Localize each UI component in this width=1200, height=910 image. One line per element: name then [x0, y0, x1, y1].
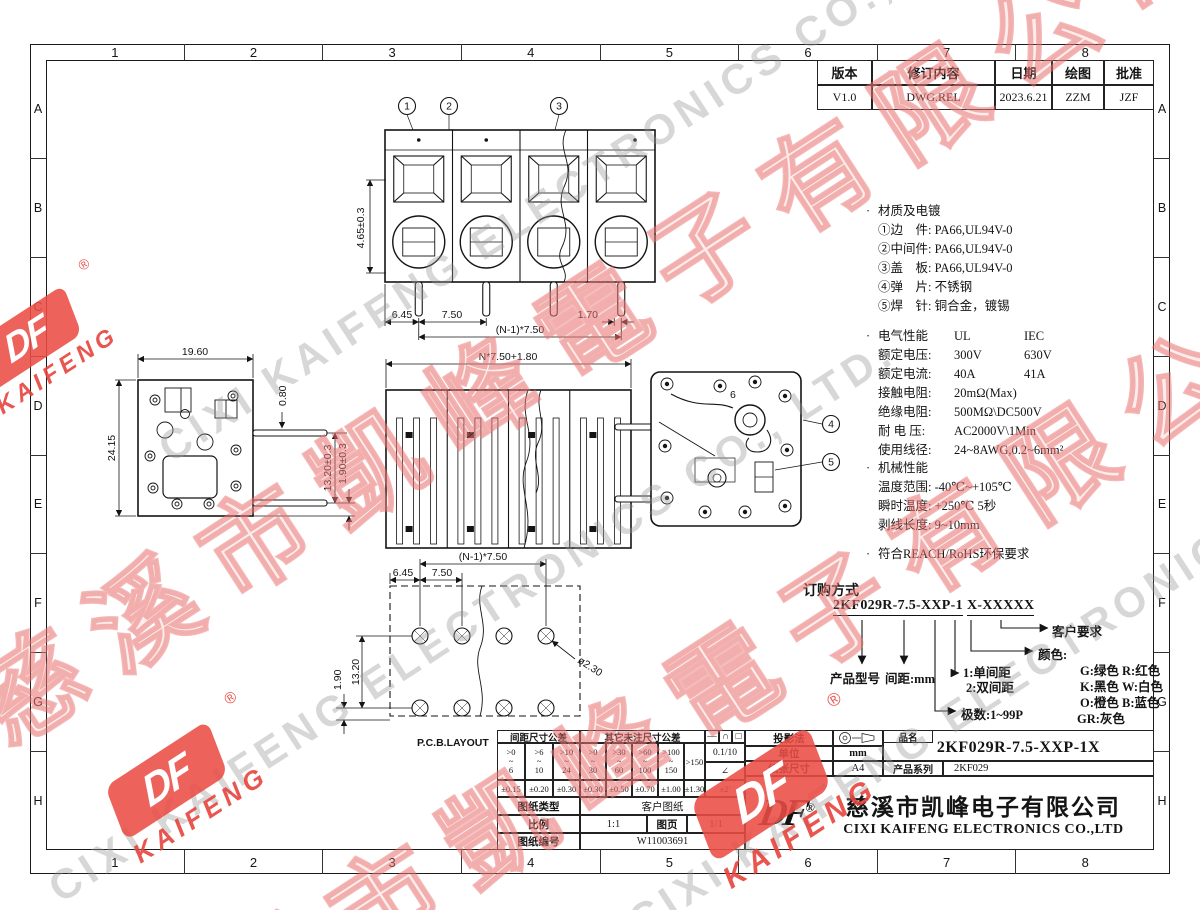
ordering-diagram: 订购方式 2KF029R-7.5-XXP-1 X-XXXXX 产品型号 间距:m… — [800, 578, 1160, 733]
electrical-col-ul: UL — [954, 327, 1024, 346]
flatness-symbol: □ — [732, 730, 745, 743]
side-view-drawing: 19.60 24.15 0.80 13.20±0.3 1.90±0.3 — [105, 338, 360, 550]
material-item: ③盖 板: PA66,UL94V-0 — [878, 259, 1013, 278]
dim-front-edge: 6.45 — [392, 309, 413, 321]
first-angle-projection-icon — [835, 731, 881, 745]
section-view-geometry — [615, 372, 840, 526]
spec-value-iec: 630V — [1024, 346, 1052, 365]
spec-value: AC2000V\1Min — [954, 422, 1036, 441]
dim-front-span: (N-1)*7.50 — [496, 324, 545, 336]
revision-col-version: 版本 — [817, 60, 872, 85]
spec-value-iec: 41A — [1024, 365, 1046, 384]
doc-number-label: 图纸编号 — [497, 833, 580, 850]
zone-letter: F — [30, 554, 46, 653]
dim-side-pin-pitch: 13.20±0.3 — [322, 445, 334, 492]
projection-symbol-cell — [833, 730, 883, 746]
title-block: 间距尺寸公差 其它未注尺寸公差 — ∩ □ >0~6 >6~10 >10~24 … — [497, 730, 1154, 850]
dim-pcb-row: 13.20 — [350, 659, 362, 685]
series-label: 产品系列 — [883, 761, 943, 776]
zone-strip-left: A B C D E F G H — [30, 60, 46, 850]
revision-date: 2023.6.21 — [995, 85, 1052, 110]
dim-front-pitch: 7.50 — [442, 309, 463, 321]
revision-col-approved: 批准 — [1104, 60, 1154, 85]
balloon-2: 2 — [446, 101, 452, 113]
spec-value: 24~8AWG,0.2~6mm² — [954, 441, 1063, 460]
tolerance-range: >0~6 — [497, 743, 525, 780]
company-name-chinese: 慈溪市凯峰电子有限公司 — [814, 788, 1153, 822]
sheet-value: 1/1 — [687, 815, 745, 833]
dim-front-pin: 1.70 — [578, 309, 599, 321]
scale-value: 1:1 — [580, 815, 647, 833]
zone-letter: A — [30, 60, 46, 159]
tolerance-range: >60~100 — [632, 743, 658, 780]
zone-number: 6 — [739, 44, 878, 60]
pcb-layout-drawing: (N-1)*7.50 6.45 7.50 ø2.30 13.20 1.90 P.… — [332, 538, 632, 752]
tolerance-value: ±0.15 — [497, 780, 525, 797]
section-view-drawing: 6 4 5 — [615, 358, 850, 540]
angle-symbol: ∠ — [705, 762, 745, 780]
zone-number: 5 — [601, 44, 740, 60]
company-block: DF® 慈溪市凯峰电子有限公司 CIXI KAIFENG ELECTRONICS… — [745, 776, 1154, 850]
back-view-drawing: N*7.50+1.80 — [378, 348, 640, 558]
electrical-title: 电气性能 — [878, 327, 954, 346]
tolerance-value: ±1.30 — [684, 780, 705, 797]
engineering-drawing-sheet: 慈溪市凱峰電子有限公司 慈溪市凱峰電子有限公司 CIXI KAIFENG ELE… — [0, 0, 1200, 910]
revision-description: DWG.REL — [872, 85, 995, 110]
mechanical-item: 剥线长度: 9~10mm — [878, 516, 980, 535]
tolerance-range: >30~60 — [606, 743, 632, 780]
company-df-logo: DF® — [756, 791, 818, 835]
revision-version: V1.0 — [817, 85, 872, 110]
profile-ratio: 0.1/10 — [705, 743, 745, 762]
bullet: · — [866, 545, 878, 564]
zone-number: 1 — [46, 850, 185, 874]
other-tolerance-title: 其它未注尺寸公差 — [580, 730, 705, 743]
revision-drawn-by: ZZM — [1052, 85, 1104, 110]
spec-label: 额定电压: — [878, 346, 954, 365]
zone-number: 4 — [462, 44, 601, 60]
doc-type-value: 客户图纸 — [580, 797, 745, 815]
spec-label: 绝缘电阻: — [878, 403, 954, 422]
zone-number: 2 — [185, 850, 324, 874]
side-view-geometry: 19.60 24.15 0.80 13.20±0.3 1.90±0.3 — [106, 346, 355, 530]
zone-letter: A — [1154, 60, 1170, 159]
back-view-geometry: N*7.50+1.80 — [386, 351, 631, 548]
electrical-spec-block: ·电气性能ULIEC 额定电压:300V630V 额定电流:40A41A 接触电… — [866, 327, 1158, 460]
zone-number: 3 — [323, 850, 462, 874]
company-names: 慈溪市凯峰电子有限公司 CIXI KAIFENG ELECTRONICS CO.… — [814, 788, 1153, 838]
dim-side-height: 24.15 — [106, 435, 118, 461]
series-value: 2KF029 — [943, 761, 1154, 776]
dim-back-width: N*7.50+1.80 — [479, 351, 538, 363]
dim-side-pin-width: 0.80 — [277, 385, 289, 406]
spacing-tolerance-title: 间距尺寸公差 — [497, 730, 580, 743]
bullet: · — [866, 202, 878, 221]
tolerance-range: >10~24 — [553, 743, 580, 780]
doc-number-value: W11003691 — [580, 833, 745, 850]
tolerance-value: ±1.00 — [658, 780, 684, 797]
zone-number: 5 — [601, 850, 740, 874]
dim-pcb-span: (N-1)*7.50 — [459, 551, 508, 563]
zone-number: 4 — [462, 850, 601, 874]
material-item: ④弹 片: 不锈钢 — [878, 278, 972, 297]
zone-number: 3 — [323, 44, 462, 60]
unit-value: mm — [833, 746, 883, 761]
spec-label: 接触电阻: — [878, 384, 954, 403]
tolerance-range: >100~150 — [658, 743, 684, 780]
mechanical-item: 瞬时温度: +250℃ 5秒 — [878, 497, 996, 516]
revision-approved-by: JZF — [1104, 85, 1154, 110]
mechanical-item: 温度范围: -40℃~+105℃ — [878, 478, 1012, 497]
material-item: ②中间件: PA66,UL94V-0 — [878, 240, 1013, 259]
material-spec-block: ·材质及电镀 ①边 件: PA66,UL94V-0 ②中间件: PA66,UL9… — [866, 202, 1158, 316]
paper-size-value: A4 — [833, 761, 883, 776]
material-title: 材质及电镀 — [878, 202, 941, 221]
zone-letter: E — [30, 456, 46, 555]
balloon-4: 4 — [828, 419, 834, 431]
tolerance-value: ±0.70 — [632, 780, 658, 797]
unit-label: 单位 — [745, 746, 833, 761]
tolerance-value: ±0.30 — [553, 780, 580, 797]
spec-label: 使用线径: — [878, 441, 954, 460]
doc-type-label: 图纸类型 — [497, 797, 580, 815]
balloon-1: 1 — [404, 101, 410, 113]
front-view-drawing: 4.65±0.3 6.45 7.50 1.70 (N-1)*7.50 1 2 3 — [340, 92, 670, 344]
dim-front-height: 4.65±0.3 — [355, 207, 367, 248]
zone-number: 2 — [185, 44, 324, 60]
zone-letter: H — [1154, 752, 1170, 850]
zone-number: 8 — [1016, 44, 1154, 60]
dim-side-width: 19.60 — [182, 346, 208, 358]
pcb-layout-geometry: (N-1)*7.50 6.45 7.50 ø2.30 13.20 1.90 P.… — [332, 551, 605, 749]
tolerance-range-over: >150 — [684, 743, 705, 780]
balloon-5: 5 — [828, 457, 834, 469]
material-item: ⑤焊 针: 铜合金，镀锡 — [878, 297, 1010, 316]
bullet: · — [866, 459, 878, 478]
compliance-text: 符合REACH/RoHS环保要求 — [878, 545, 1029, 564]
tolerance-value: ±0.50 — [606, 780, 632, 797]
zone-letter: G — [30, 653, 46, 752]
ordering-arrows — [800, 578, 1160, 733]
tolerance-value: ±0.20 — [525, 780, 553, 797]
arc-symbol: ∩ — [719, 730, 732, 743]
pcb-layout-title: P.C.B.LAYOUT — [417, 737, 489, 749]
zone-strip-top: 1 2 3 4 5 6 7 8 — [46, 44, 1154, 60]
revision-col-drawn: 绘图 — [1052, 60, 1104, 85]
straightness-symbol: — — [705, 730, 719, 743]
revision-col-description: 修订内容 — [872, 60, 995, 85]
scale-label: 比例 — [497, 815, 580, 833]
section-inner-label: 6 — [730, 389, 736, 401]
part-name-label: 品名 — [883, 730, 933, 743]
zone-strip-bottom: 1 2 3 4 5 6 7 8 — [46, 850, 1154, 874]
tolerance-range: >6~10 — [525, 743, 553, 780]
spec-value-ul: 40A — [954, 365, 1024, 384]
mechanical-title: 机械性能 — [878, 459, 928, 478]
angle-tolerance-value: ±2′ — [705, 780, 745, 797]
dim-pcb-pitch: 7.50 — [432, 567, 453, 579]
dim-pcb-edge: 6.45 — [393, 567, 414, 579]
zone-number: 8 — [1016, 850, 1154, 874]
tolerance-value: ±0.30 — [580, 780, 606, 797]
paper-size-label: 纸张尺寸 — [745, 761, 833, 776]
zone-letter: C — [30, 258, 46, 357]
balloon-3: 3 — [556, 101, 562, 113]
zone-number: 7 — [878, 850, 1017, 874]
dim-side-pin-offset: 1.90±0.3 — [337, 443, 349, 484]
front-view-geometry: 4.65±0.3 6.45 7.50 1.70 (N-1)*7.50 — [355, 98, 655, 341]
spec-value: 20mΩ(Max) — [954, 384, 1017, 403]
zone-letter: B — [30, 159, 46, 258]
spec-value-ul: 300V — [954, 346, 1024, 365]
sheet-label: 图页 — [647, 815, 687, 833]
spec-label: 耐 电 压: — [878, 422, 954, 441]
tolerance-range: >0~30 — [580, 743, 606, 780]
zone-number: 1 — [46, 44, 185, 60]
projection-label: 投影法 — [745, 730, 833, 746]
material-item: ①边 件: PA66,UL94V-0 — [878, 221, 1013, 240]
revision-col-date: 日期 — [995, 60, 1052, 85]
electrical-col-iec: IEC — [1024, 327, 1044, 346]
zone-number: 7 — [878, 44, 1017, 60]
revision-table: 版本 修订内容 日期 绘图 批准 V1.0 DWG.REL 2023.6.21 … — [817, 60, 1154, 110]
zone-letter: D — [30, 357, 46, 456]
dim-pcb-offset: 1.90 — [332, 669, 344, 690]
mechanical-spec-block: ·机械性能 温度范围: -40℃~+105℃ 瞬时温度: +250℃ 5秒 剥线… — [866, 459, 1158, 535]
zone-number: 6 — [739, 850, 878, 874]
spec-value: 500MΩ\DC500V — [954, 403, 1042, 422]
spec-label: 额定电流: — [878, 365, 954, 384]
zone-letter: H — [30, 752, 46, 850]
bullet: · — [866, 327, 878, 346]
company-name-english: CIXI KAIFENG ELECTRONICS CO.,LTD — [814, 822, 1153, 838]
compliance-note: ·符合REACH/RoHS环保要求 — [866, 545, 1158, 564]
